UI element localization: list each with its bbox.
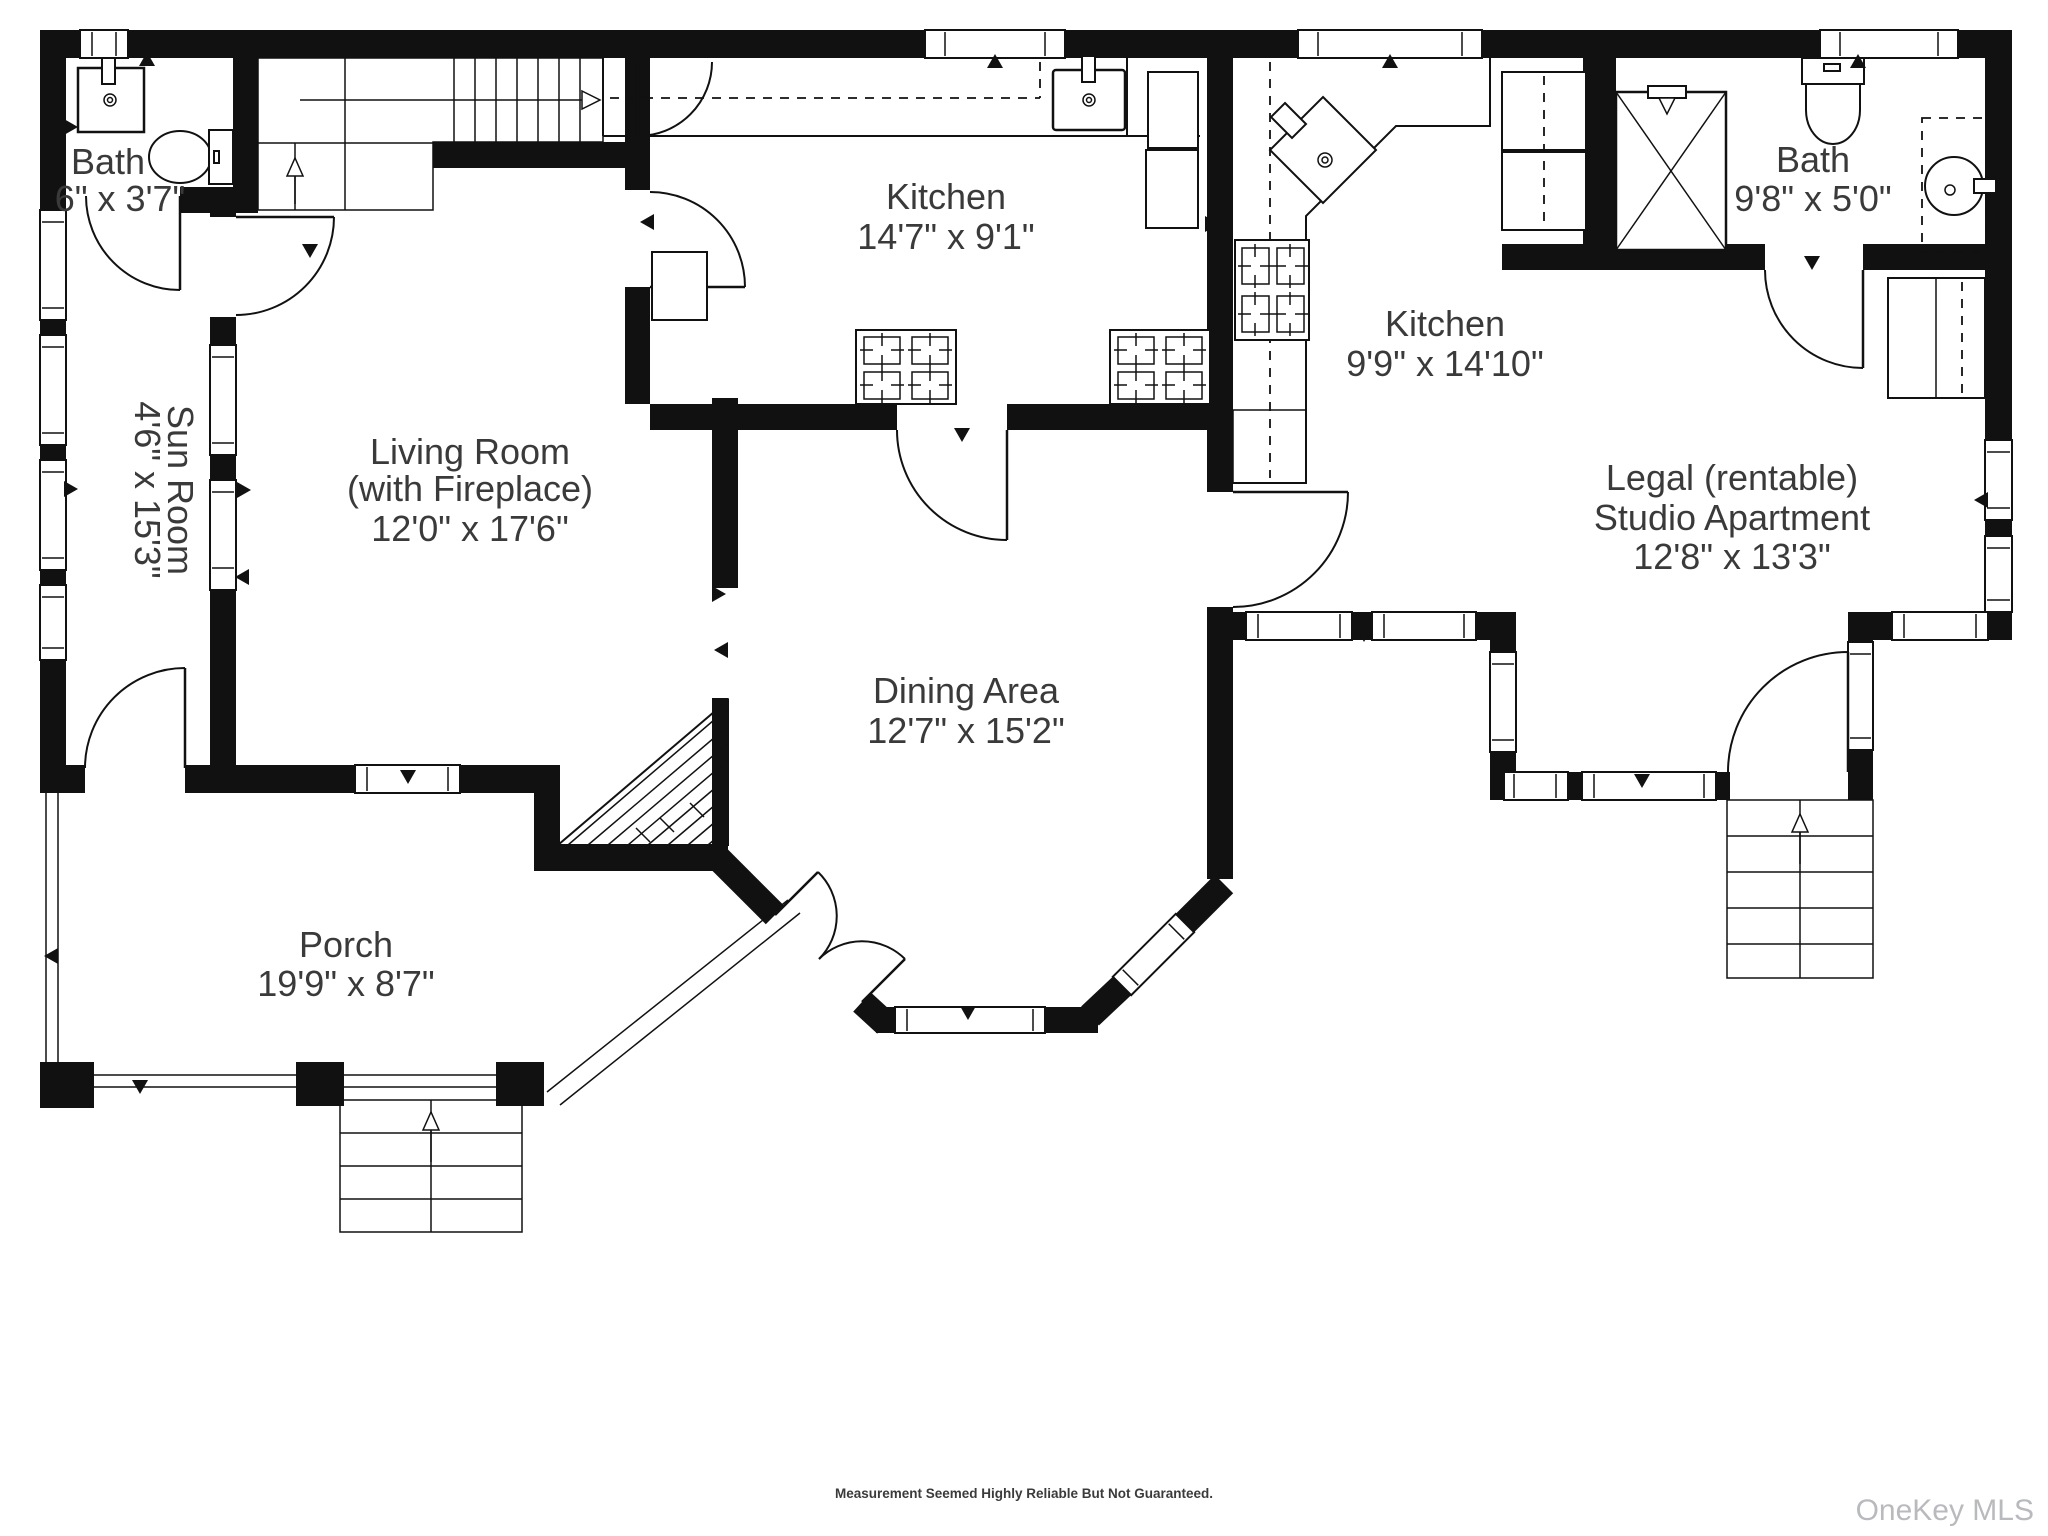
window-icon [1372, 612, 1476, 640]
closet-icon [1888, 278, 1985, 398]
porch-steps [340, 1100, 522, 1232]
sink-icon [1922, 118, 1996, 252]
window-icon [1504, 772, 1568, 800]
bath-studio-label: Bath [1776, 139, 1850, 180]
window-icon [1113, 914, 1194, 995]
stove-icon [856, 330, 956, 404]
sun-room-dims: 4'6" x 15'3" [127, 401, 168, 578]
watermark: OneKey MLS [1856, 1494, 2034, 1527]
door-arc-icon [85, 668, 185, 768]
stove-icon [1110, 330, 1210, 404]
window-icon [1820, 30, 1958, 58]
window-icon [1490, 652, 1516, 752]
window-icon [1985, 536, 2012, 612]
dining-area-label: Dining Area [873, 670, 1060, 711]
dining-area-dims: 12'7" x 15'2" [867, 710, 1064, 751]
window-icon [80, 30, 128, 58]
living-room-label: Living Room [370, 431, 570, 472]
door-arc-icon [1728, 652, 1848, 772]
window-icon [210, 345, 236, 455]
studio-label-line1: Legal (rentable) [1606, 457, 1858, 498]
staircase-upper [258, 58, 603, 210]
kitchen-main-dims: 14'7" x 9'1" [857, 216, 1034, 257]
corner-sink-icon [1270, 97, 1376, 203]
window-icon [1892, 612, 1988, 640]
porch-railing [40, 793, 800, 1108]
bath-main-dims: 6" x 3'7" [55, 178, 186, 219]
living-room-sub: (with Fireplace) [347, 468, 593, 509]
door-arc-icon [236, 217, 334, 315]
kitchen-studio-dims: 9'9" x 14'10" [1346, 343, 1543, 384]
bath-studio-dims: 9'8" x 5'0" [1734, 178, 1891, 219]
kitchen-studio-label: Kitchen [1385, 303, 1505, 344]
french-door-icon [775, 872, 905, 1002]
shower-icon [1616, 86, 1726, 250]
window-icon [210, 480, 236, 590]
window-icon [1582, 772, 1716, 800]
toilet-icon [149, 130, 233, 184]
window-icon [40, 460, 66, 570]
kitchen-main-label: Kitchen [886, 176, 1006, 217]
door-arc-icon [1233, 492, 1348, 607]
living-room-dims: 12'0" x 17'6" [371, 508, 568, 549]
toilet-icon [1802, 58, 1864, 144]
porch-dims: 19'9" x 8'7" [257, 963, 434, 1004]
window-icon [40, 210, 66, 320]
window-icon [1985, 440, 2012, 520]
fireplace-icon [558, 700, 728, 845]
porch-label: Porch [299, 924, 393, 965]
door-arc-icon [897, 430, 1007, 540]
disclaimer-text: Measurement Seemed Highly Reliable But N… [835, 1486, 1213, 1501]
studio-dims: 12'8" x 13'3" [1633, 536, 1830, 577]
sink-icon [1053, 56, 1125, 130]
window-icon [1298, 30, 1482, 58]
floor-plan-page: Bath 6" x 3'7" Sun Room 4'6" x 15'3" Liv… [0, 0, 2048, 1536]
window-icon [1848, 642, 1873, 750]
refrigerator-icon [1502, 72, 1586, 230]
refrigerator-icon [1146, 72, 1198, 228]
studio-label-line2: Studio Apartment [1594, 497, 1870, 538]
cabinet-icon [652, 252, 707, 320]
window-icon [1246, 612, 1352, 640]
bath-main-label: Bath [71, 141, 145, 182]
window-icon [925, 30, 1065, 58]
stove-icon [1235, 240, 1309, 340]
door-arc-icon [1765, 270, 1863, 368]
sink-icon [78, 58, 144, 132]
window-icon [40, 335, 66, 445]
window-icon [40, 585, 66, 660]
staircase-studio-entry [1727, 800, 1873, 978]
floor-plan: Bath 6" x 3'7" Sun Room 4'6" x 15'3" Liv… [0, 0, 2048, 1536]
